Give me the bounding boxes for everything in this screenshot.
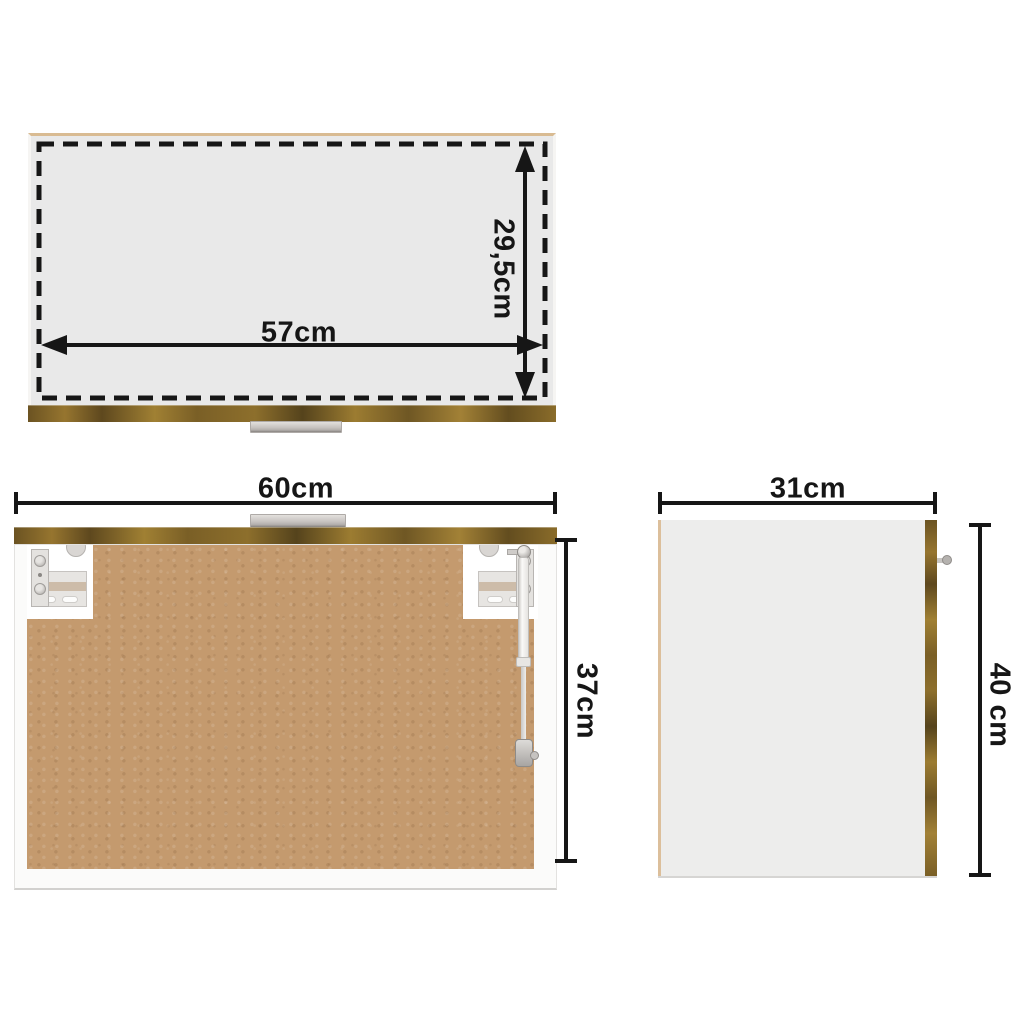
arrowhead-left: [41, 335, 67, 355]
dashed-outline: [39, 144, 545, 398]
arrowhead-right: [517, 335, 543, 355]
mdf-back-panel: [27, 545, 534, 869]
top-view-dimension-graphics: [31, 136, 553, 405]
front-view: 60cm: [14, 470, 618, 900]
top-width-label: 57cm: [261, 317, 337, 350]
door-handle-front-view: [250, 514, 346, 528]
cabinet-side-panel: [658, 520, 937, 878]
cam-disc: [66, 545, 86, 557]
dimension-cap: [553, 492, 557, 514]
front-height-dimension-line: [564, 540, 568, 863]
adjuster-cam: [34, 583, 46, 595]
dimension-cap: [14, 492, 18, 514]
cabinet-top-panel: 57cm 29,5cm: [28, 133, 556, 405]
front-width-dimension-line: [14, 501, 557, 505]
side-height-dimension-line: [978, 525, 982, 877]
dimension-cap: [555, 859, 577, 863]
side-panel-front-edge: [658, 520, 661, 876]
strut-rod: [521, 667, 526, 741]
dimension-cap: [555, 538, 577, 542]
wall-fixing-knob: [942, 555, 952, 565]
screw-dot: [38, 573, 42, 577]
side-width-dimension-line: [658, 501, 937, 505]
cabinet-carcass: [14, 544, 557, 890]
arrowhead-up: [515, 146, 535, 172]
side-wood-strip: [925, 520, 937, 876]
dimension-cap: [969, 523, 991, 527]
strut-cylinder: [518, 557, 529, 659]
dimension-cap: [658, 492, 662, 514]
cabinet-top-wood-strip: [14, 527, 557, 545]
cam-disc: [479, 545, 499, 557]
adjuster-cam: [34, 555, 46, 567]
rail-slot: [487, 596, 503, 603]
side-height-label: 40 cm: [983, 663, 1016, 748]
front-edge-wood-strip: [28, 405, 556, 422]
cabinet-dimension-diagram: 57cm 29,5cm 60cm: [0, 0, 1024, 1024]
dimension-cap: [933, 492, 937, 514]
arrowhead-down: [515, 372, 535, 398]
strut-screw: [530, 751, 539, 760]
top-depth-label: 29,5cm: [487, 218, 520, 319]
top-view: 57cm 29,5cm: [28, 133, 556, 435]
bracket-recess-left: [27, 545, 93, 619]
side-view: 31cm 40 cm: [658, 470, 1024, 900]
rail-slot: [62, 596, 78, 603]
strut-collar: [516, 657, 531, 667]
dimension-cap: [969, 873, 991, 877]
door-handle-top-view: [250, 421, 342, 433]
front-height-label: 37cm: [570, 663, 603, 739]
